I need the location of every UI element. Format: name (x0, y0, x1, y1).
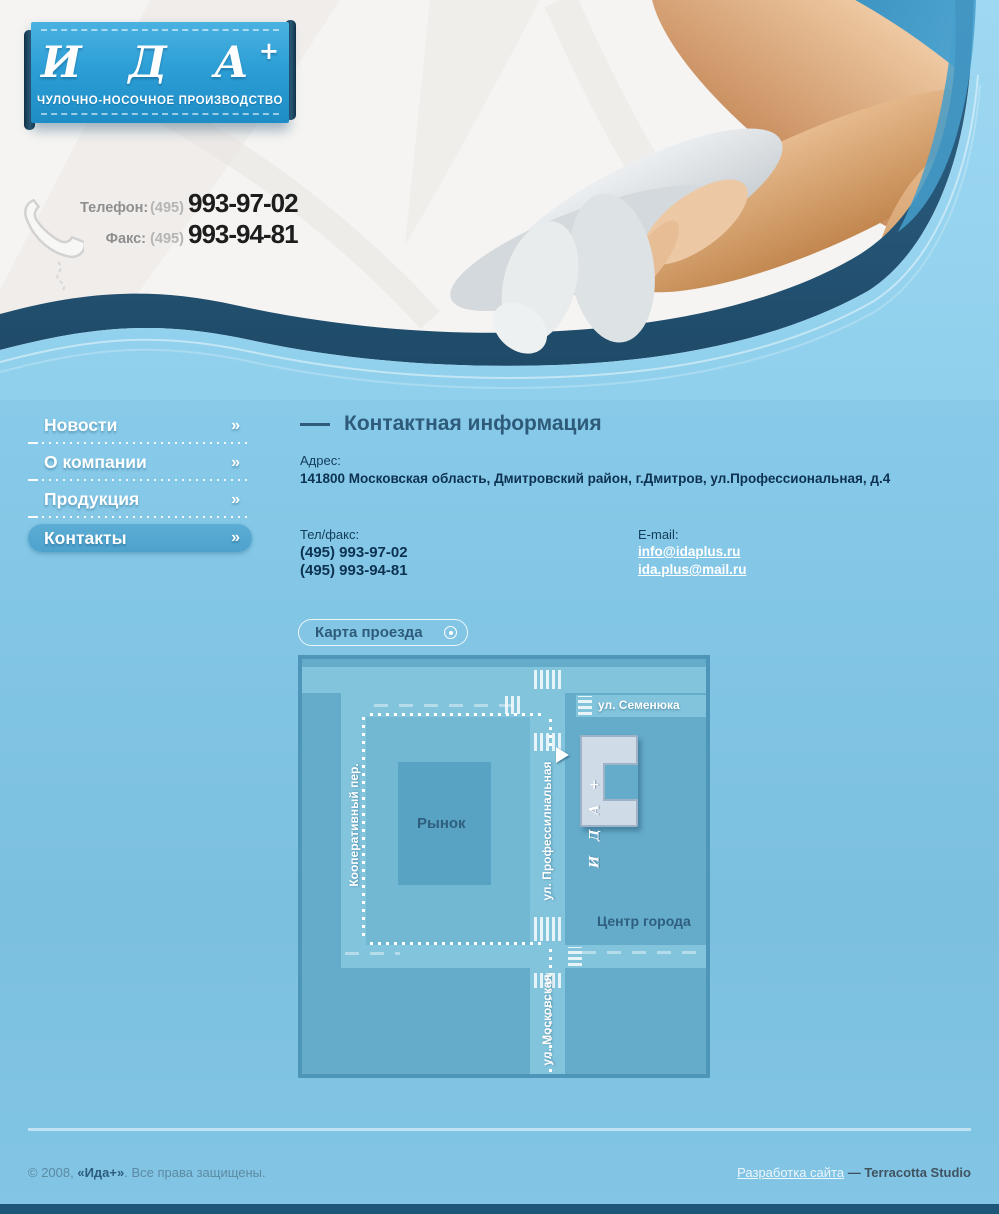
map-rynok-label: Рынок (417, 815, 466, 832)
email-link-2[interactable]: ida.plus@mail.ru (638, 562, 746, 577)
map-ida-building: И Д А + (580, 735, 638, 827)
page-heading: Контактная информация (300, 412, 602, 436)
banner-face: И Д А+ ЧУЛОЧНО-НОСОЧНОЕ ПРОИЗВОДСТВО (31, 22, 289, 123)
email-link-1[interactable]: info@idaplus.ru (638, 544, 740, 559)
map-ida-building-label: И Д А + (588, 774, 603, 868)
map-street-semenyuka-label: ул. Семенюка (598, 698, 680, 712)
chevron-right-icon: » (231, 417, 240, 435)
logo-text: И Д А (41, 38, 265, 88)
logo-banner[interactable]: И Д А+ ЧУЛОЧНО-НОСОЧНОЕ ПРОИЗВОДСТВО (24, 16, 296, 128)
map-route-segment (362, 717, 365, 939)
sidebar-item-contacts[interactable]: Контакты » (28, 524, 252, 552)
map-dash-line (345, 952, 400, 955)
developer-link[interactable]: Разработка сайта (737, 1165, 844, 1180)
logo-plus: + (259, 36, 279, 65)
map-road-top (302, 667, 706, 693)
sidebar-item-label: Контакты (44, 528, 127, 549)
map-crosswalk (505, 696, 521, 714)
fax-label: Факс: (80, 231, 146, 247)
developer-name: Terracotta Studio (864, 1165, 971, 1180)
map-ida-building-notch (603, 763, 638, 801)
sidebar-nav: Новости » О компании » Продукция » Конта… (28, 407, 252, 552)
map-street-professionalnaya-label: ул. Профессилнальная (540, 761, 554, 900)
banner-stitch-top (41, 29, 279, 31)
fax-code: (495) (146, 231, 188, 247)
phone-number: 993-97-02 (188, 188, 298, 219)
telfax-label: Тел/факс: (300, 527, 359, 542)
map-center-label: Центр города (597, 913, 691, 929)
map-crosswalk (534, 917, 562, 941)
map-cursor-arrow-icon (556, 747, 569, 763)
copyright-brand: «Ида+» (77, 1165, 124, 1180)
map-dash-line (582, 951, 704, 954)
map-street-moskovskaya-label: ул. Московская (540, 974, 554, 1065)
telfax-number-2: (495) 993-94-81 (300, 562, 408, 579)
map-route-segment (549, 719, 552, 747)
map-crosswalk (534, 670, 562, 689)
map-route-segment (370, 713, 546, 716)
map-dash-line (374, 704, 524, 707)
copyright-suffix: . Все права защищены. (124, 1165, 265, 1180)
map-crosswalk (568, 947, 582, 966)
phone-row: Телефон: (495) 993-97-02 (80, 188, 310, 219)
sidebar-item-news[interactable]: Новости » (28, 407, 252, 444)
copyright: © 2008, «Ида+». Все права защищены. (28, 1165, 266, 1180)
route-map-canvas: И Д А + ул. Семенюка Кооперативный пер. … (302, 659, 706, 1074)
chevron-right-icon: » (231, 529, 240, 547)
map-button-label: Карта проезда (315, 624, 423, 641)
page-title: Контактная информация (344, 412, 602, 436)
banner-stitch-bottom (41, 113, 279, 115)
route-map: И Д А + ул. Семенюка Кооперативный пер. … (298, 655, 710, 1078)
footer-divider (28, 1128, 971, 1131)
map-button[interactable]: Карта проезда (298, 619, 468, 646)
sidebar-item-label: Продукция (44, 489, 139, 510)
sidebar-item-label: О компании (44, 452, 147, 473)
telfax-number-1: (495) 993-97-02 (300, 544, 408, 561)
bottom-bar (0, 1204, 999, 1214)
chevron-right-icon: » (231, 454, 240, 472)
sidebar-item-about[interactable]: О компании » (28, 444, 252, 481)
address-label: Адрес: (300, 453, 341, 468)
chevron-right-icon: » (231, 491, 240, 509)
map-road-bottom-left (341, 945, 530, 968)
fax-number: 993-94-81 (188, 219, 298, 250)
copyright-prefix: © 2008, (28, 1165, 77, 1180)
map-route-segment (370, 942, 546, 945)
map-road-bottom-right (565, 945, 706, 968)
phone-rows: Телефон: (495) 993-97-02 Факс: (495) 993… (80, 188, 310, 250)
page-root: И Д А+ ЧУЛОЧНО-НОСОЧНОЕ ПРОИЗВОДСТВО Тел… (0, 0, 999, 1214)
heading-dash (300, 423, 330, 426)
phone-code: (495) (146, 200, 188, 216)
logo-wordmark: И Д А+ (31, 36, 289, 88)
developer-sep: — (844, 1165, 864, 1180)
email-label: E-mail: (638, 527, 678, 542)
map-crosswalk (578, 696, 592, 715)
developer-credit: Разработка сайта — Terracotta Studio (737, 1165, 971, 1180)
phone-label: Телефон: (80, 200, 146, 216)
logo-subtitle: ЧУЛОЧНО-НОСОЧНОЕ ПРОИЗВОДСТВО (31, 95, 289, 107)
phone-handset-icon (22, 190, 84, 290)
sidebar-item-products[interactable]: Продукция » (28, 481, 252, 518)
address-value: 141800 Московская область, Дмитровский р… (300, 471, 890, 486)
map-street-kooperativny-label: Кооперативный пер. (347, 763, 361, 886)
map-button-target-icon (444, 626, 457, 639)
fax-row: Факс: (495) 993-94-81 (80, 219, 310, 250)
sidebar-item-label: Новости (44, 415, 117, 436)
